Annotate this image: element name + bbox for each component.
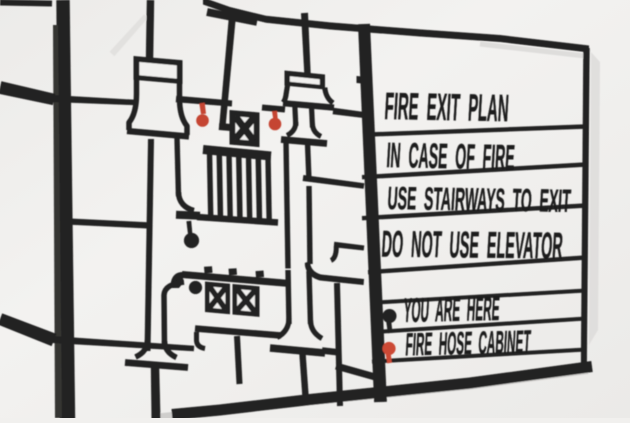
svg-text:USE STAIRWAYS TO EXIT: USE STAIRWAYS TO EXIT — [387, 181, 572, 220]
svg-text:IN CASE OF FIRE: IN CASE OF FIRE — [386, 135, 516, 177]
svg-text:FIRE EXIT PLAN: FIRE EXIT PLAN — [383, 86, 509, 130]
svg-text:FIRE HOSE CABINET: FIRE HOSE CABINET — [405, 324, 532, 362]
svg-text:DO NOT USE ELEVATOR: DO NOT USE ELEVATOR — [380, 224, 563, 267]
svg-text:YOU ARE HERE: YOU ARE HERE — [403, 289, 501, 330]
